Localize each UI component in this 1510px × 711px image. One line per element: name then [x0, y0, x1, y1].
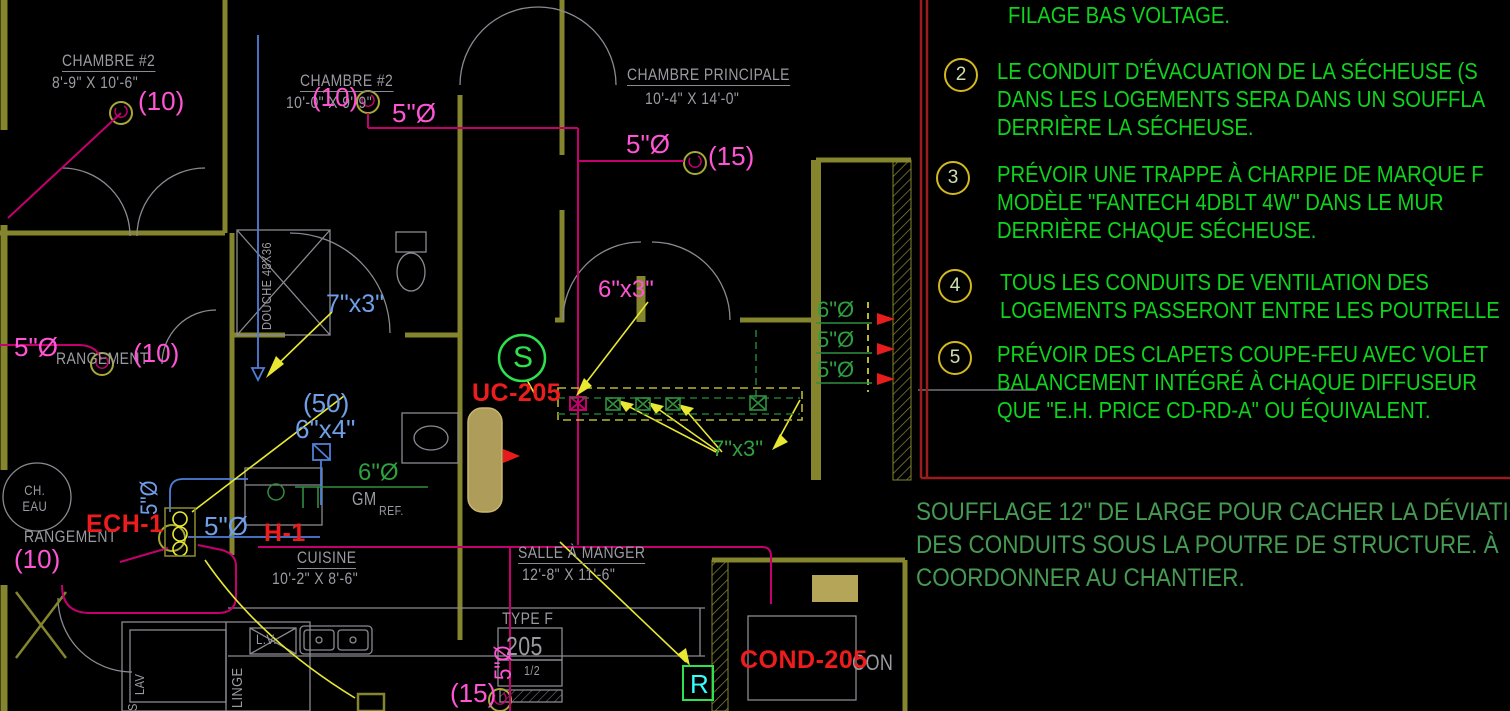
duct-7x3-green-label: 7"x3": [712, 438, 763, 460]
supply-symbol-letter: S: [513, 343, 533, 373]
room-dims-salle-a-manger: 12'-8" X 11'-6": [522, 566, 615, 583]
room-label-douche: DOUCHE 48X36: [260, 242, 273, 330]
soffit-fill: [812, 575, 858, 602]
tag-ech-1: ECH-1: [86, 512, 164, 537]
note-2-line-1: LE CONDUIT D'ÉVACUATION DE LA SÉCHEUSE (…: [997, 60, 1478, 83]
linge-label: LINGE: [230, 668, 245, 708]
room-label-salle-a-manger: SALLE À MANGER: [518, 544, 645, 564]
note-2-line-2: DANS LES LOGEMENTS SERA DANS UN SOUFFLA: [997, 88, 1485, 111]
gas-meter-label: GM: [352, 490, 377, 508]
note-2-line-3: DERRIÈRE LA SÉCHEUSE.: [997, 116, 1253, 139]
duct-6x3-label: 6"x3": [598, 278, 654, 302]
fan-symbol: [268, 484, 284, 500]
duct-7x3-blue-label: 7"x3": [326, 292, 384, 317]
type-f-label: TYPE F: [502, 610, 553, 627]
cfm-10-label-d: (10): [14, 546, 60, 572]
fridge-label: REF.: [379, 504, 404, 517]
room-label-chauffe-eau: CH. EAU: [20, 482, 50, 514]
note-5-line-3: QUE "E.H. PRICE CD-RD-A" OU ÉQUIVALENT.: [997, 399, 1430, 422]
duct-5dia-riser-label: 5"Ø: [492, 646, 516, 680]
bifold-door: [16, 592, 384, 711]
uc-unit-body: [468, 408, 502, 512]
duct-6dia-gm-label: 6"Ø: [358, 461, 399, 485]
room-dims-chambre2a: 8'-9" X 10'-6": [52, 74, 138, 91]
cfm-10-label-a: (10): [138, 88, 184, 114]
note-intro-line: FILAGE BAS VOLTAGE.: [1008, 4, 1230, 27]
duct-5dia-label-a: 5"Ø: [392, 100, 436, 126]
duct-5dia-label-b: 5"Ø: [626, 131, 670, 157]
note-number-2: 2: [944, 58, 978, 92]
note-5-line-1: PRÉVOIR DES CLAPETS COUPE-FEU AVEC VOLET: [997, 343, 1488, 366]
cad-floor-plan: CHAMBRE #2 8'-9" X 10'-6" CHAMBRE #2 10'…: [0, 0, 1510, 711]
room-dims-cuisine: 10'-2" X 8'-6": [272, 570, 358, 587]
note-3-line-1: PRÉVOIR UNE TRAPPE À CHARPIE DE MARQUE F: [997, 163, 1484, 186]
note-number-3: 3: [936, 161, 970, 195]
soufflage-note-line-1: SOUFFLAGE 12" DE LARGE POUR CACHER LA DÉ…: [916, 500, 1510, 525]
dishwasher-label: L.V.: [256, 632, 277, 646]
tag-h-1: H-1: [264, 521, 306, 546]
note-number-5: 5: [938, 341, 972, 375]
note-number-4: 4: [938, 269, 972, 303]
diffuser-symbols: [91, 91, 706, 711]
soufflage-note-line-2: DES CONDUITS SOUS LA POUTRE DE STRUCTURE…: [916, 533, 1499, 558]
note-4-line-1: TOUS LES CONDUITS DE VENTILATION DES: [1000, 271, 1429, 294]
duct-6x4-label: 6"x4": [295, 416, 355, 442]
cfm-15-label-a: (15): [708, 143, 754, 169]
note-3-line-3: DERRIÈRE CHAQUE SÉCHEUSE.: [997, 219, 1316, 242]
room-label-chambre2a: CHAMBRE #2: [62, 52, 155, 72]
note-4-line-2: LOGEMENTS PASSERONT ENTRE LES POUTRELLE: [1000, 299, 1500, 322]
soufflage-note-line-3: COORDONNER AU CHANTIER.: [916, 566, 1245, 591]
note-5-line-2: BALANCEMENT INTÉGRÉ À CHAQUE DIFFUSEUR: [997, 371, 1477, 394]
tag-cond-205: COND-205: [740, 648, 868, 673]
cfm-15-label-b: (15): [450, 680, 496, 706]
duct-6dia-stack-label: 6"Ø: [817, 299, 854, 321]
cfm-10-label-c: (10): [133, 340, 179, 366]
cfm-10-label-b: (10): [312, 84, 358, 110]
tag-uc-205: UC-205: [472, 381, 561, 406]
dryer-label: S: [126, 703, 139, 711]
washer-label: LAV: [133, 674, 146, 695]
return-symbol-letter: R: [690, 671, 709, 697]
duct-5dia-stack-label-1: 5"Ø: [817, 329, 854, 351]
duct-5dia-blue-h-label: 5"Ø: [204, 513, 248, 539]
room-label-principale: CHAMBRE PRINCIPALE: [627, 66, 790, 86]
room-label-cuisine: CUISINE: [297, 549, 356, 569]
duct-5dia-stack-label-2: 5"Ø: [817, 359, 854, 381]
half-label: 1/2: [524, 664, 540, 677]
duct-5dia-label-c: 5"Ø: [14, 334, 58, 360]
cfm-50-label: (50): [303, 390, 349, 416]
note-3-line-2: MODÈLE "FANTECH 4DBLT 4W" DANS LE MUR: [997, 191, 1444, 214]
room-dims-principale: 10'-4" X 14'-0": [645, 90, 739, 107]
